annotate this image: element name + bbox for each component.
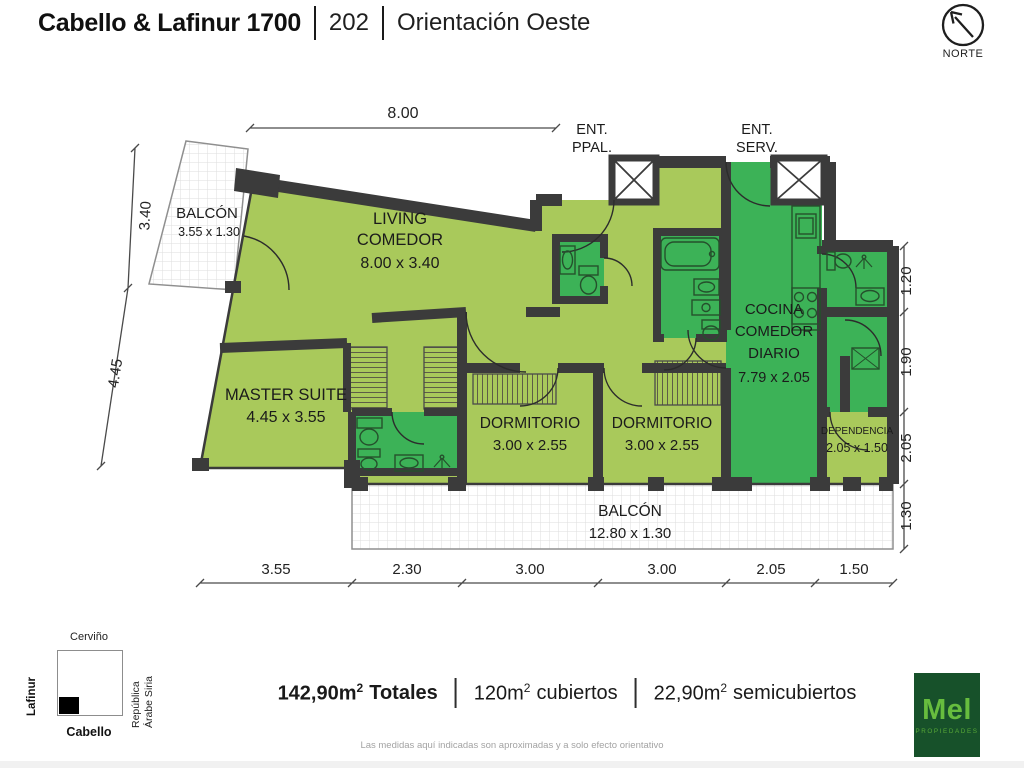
dim-top: 8.00 bbox=[387, 105, 418, 122]
room-label-dependencia: DEPENDENCIA bbox=[821, 426, 894, 437]
dim-bottom-5: 2.05 bbox=[756, 561, 785, 578]
room-dims-balcony-left: 3.55 x 1.30 bbox=[178, 225, 240, 239]
street-right-line2: Árabe Siria bbox=[143, 638, 155, 728]
room-label-master: MASTER SUITE bbox=[225, 386, 347, 404]
street-bottom: Cabello bbox=[47, 725, 131, 739]
area-total-value: 142,90m bbox=[278, 682, 357, 704]
room-label-dorm2: DORMITORIO bbox=[612, 415, 712, 432]
dim-bottom-6: 1.50 bbox=[839, 561, 868, 578]
room-label-living-2: COMEDOR bbox=[357, 231, 443, 249]
street-right: República Árabe Siria bbox=[130, 638, 155, 728]
area-semi-label: semicubiertos bbox=[733, 682, 856, 704]
area-covered-label: cubiertos bbox=[536, 682, 617, 704]
entrance-service-label-2: SERV. bbox=[736, 140, 778, 156]
area-summary: 142,90m2Totales 120m2cubiertos 22,90m2se… bbox=[278, 676, 857, 710]
street-right-line1: República bbox=[130, 638, 142, 728]
north-indicator: NORTE bbox=[943, 5, 984, 60]
dim-bottom-3: 3.00 bbox=[515, 561, 544, 578]
area-total: 142,90m2Totales bbox=[278, 681, 438, 706]
room-label-living: LIVING bbox=[373, 210, 427, 228]
disclaimer-text: Las medidas aquí indicadas son aproximad… bbox=[0, 740, 1024, 751]
agency-logo-sub: PROPIEDADES bbox=[915, 728, 978, 735]
room-dims-balcony-bottom: 12.80 x 1.30 bbox=[589, 525, 672, 542]
dim-right-1: 1.20 bbox=[898, 266, 915, 295]
dim-left-1: 3.40 bbox=[136, 201, 155, 231]
dim-right-2: 1.90 bbox=[898, 347, 915, 376]
room-label-dorm1: DORMITORIO bbox=[480, 415, 580, 432]
area-semi-value: 22,90m bbox=[654, 682, 721, 704]
area-divider bbox=[635, 678, 637, 708]
bottom-strip bbox=[0, 761, 1024, 768]
street-left: Lafinur bbox=[26, 650, 38, 716]
dim-bottom-4: 3.00 bbox=[647, 561, 676, 578]
area-total-sup: 2 bbox=[357, 681, 364, 695]
north-label: NORTE bbox=[943, 48, 984, 60]
room-label-cocina-2: COMEDOR bbox=[735, 323, 814, 340]
entrance-service-label: ENT. bbox=[741, 122, 772, 138]
room-label-cocina: COCINA bbox=[745, 301, 803, 318]
entrance-main-label: ENT. bbox=[576, 122, 607, 138]
room-dims-cocina: 7.79 x 2.05 bbox=[738, 370, 810, 386]
dim-left-2: 4.45 bbox=[105, 358, 126, 390]
room-label-balcony-bottom: BALCÓN bbox=[598, 503, 662, 520]
area-covered: 120m2cubiertos bbox=[474, 681, 618, 706]
area-semicovered: 22,90m2semicubiertos bbox=[654, 681, 857, 706]
area-semi-sup: 2 bbox=[720, 681, 727, 695]
street-top: Cerviño bbox=[47, 631, 131, 643]
area-covered-sup: 2 bbox=[524, 681, 531, 695]
dim-right-4: 1.30 bbox=[898, 501, 915, 530]
area-total-label: Totales bbox=[369, 682, 438, 704]
room-dims-dorm2: 3.00 x 2.55 bbox=[625, 437, 699, 454]
room-dims-dependencia: 2.05 x 1.50 bbox=[826, 441, 888, 455]
area-divider bbox=[455, 678, 457, 708]
dim-right-3: 2.05 bbox=[898, 433, 915, 462]
north-arrow-icon bbox=[951, 12, 973, 37]
entrance-main-label-2: PPAL. bbox=[572, 140, 612, 156]
room-label-cocina-3: DIARIO bbox=[748, 345, 800, 362]
area-covered-value: 120m bbox=[474, 682, 524, 704]
dim-bottom-1: 3.55 bbox=[261, 561, 290, 578]
building-marker bbox=[59, 697, 79, 714]
room-label-balcony-left: BALCÓN bbox=[176, 205, 238, 222]
floorplan-page: Cabello & Lafinur 1700 202 Orientación O… bbox=[0, 0, 1024, 768]
room-dims-master: 4.45 x 3.55 bbox=[246, 409, 325, 426]
agency-logo-name: Mel bbox=[922, 696, 972, 725]
room-dims-dorm1: 3.00 x 2.55 bbox=[493, 437, 567, 454]
room-dims-living: 8.00 x 3.40 bbox=[360, 255, 439, 272]
dim-bottom-2: 2.30 bbox=[392, 561, 421, 578]
map-block bbox=[57, 650, 123, 716]
